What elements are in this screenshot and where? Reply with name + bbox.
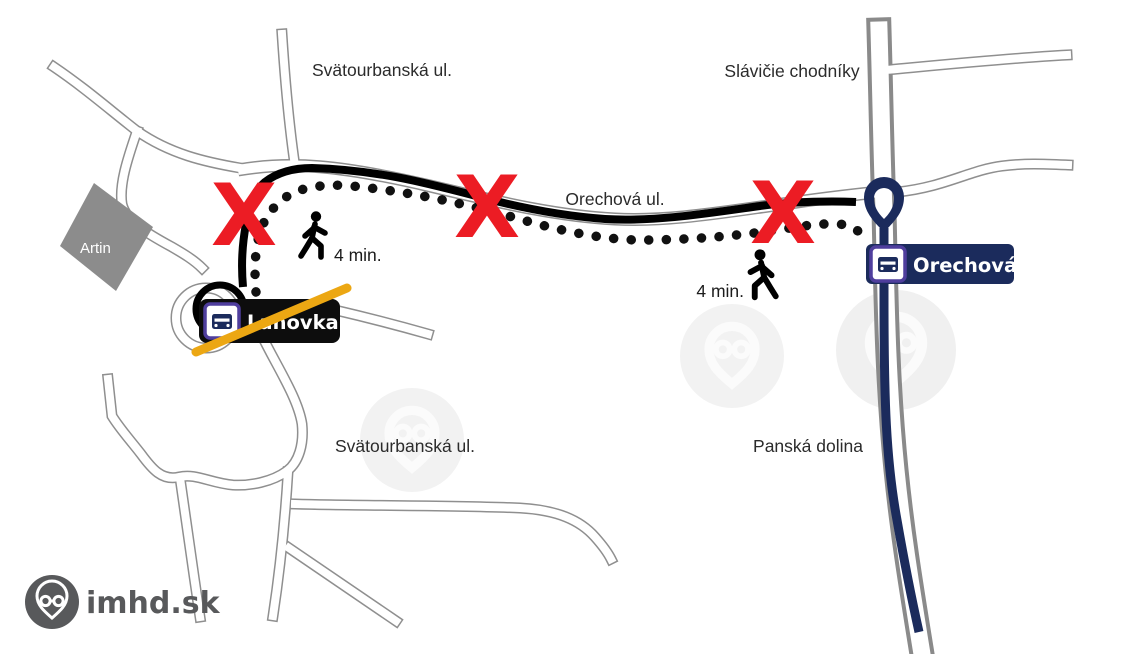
building-label: Artin [80, 240, 111, 257]
walk-east: 4 min. [696, 249, 775, 301]
street-label-svatourbanska-bottom: Svätourbanská ul. [335, 436, 475, 456]
stop-flag-lanovka: Lanovka [196, 288, 347, 352]
pedestrian-icon [301, 211, 325, 257]
stop-name-orechova: Orechová [913, 254, 1017, 277]
detour-map: Artin X X X 4 min. 4 min. Svätourbanská … [0, 0, 1125, 654]
imhd-logo-icon [25, 575, 79, 629]
closure-x-east: X [750, 164, 816, 264]
walk-west: 4 min. [301, 211, 382, 265]
street-label-panska-dolina: Panská dolina [753, 436, 863, 456]
imhd-watermarks [360, 290, 956, 492]
closure-x-middle: X [454, 158, 520, 258]
watermark-pin-icon [680, 304, 784, 408]
map-canvas: Artin X X X 4 min. 4 min. Svätourbanská … [0, 0, 1125, 654]
closure-x-west: X [211, 166, 277, 266]
stop-flag-orechova: Orechová [866, 244, 1017, 284]
walk-time-east: 4 min. [696, 281, 744, 301]
walk-time-west: 4 min. [334, 245, 382, 265]
road-segment [54, 67, 240, 168]
bus-stop-icon [871, 247, 905, 281]
street-label-slavicie-chodniky: Slávičie chodníky [724, 61, 859, 81]
street-label-svatourbanska-top: Svätourbanská ul. [312, 60, 452, 80]
building-artin: Artin [60, 183, 153, 291]
brand-text: imhd.sk [86, 586, 221, 621]
street-label-orechova-ul: Orechová ul. [565, 189, 664, 209]
